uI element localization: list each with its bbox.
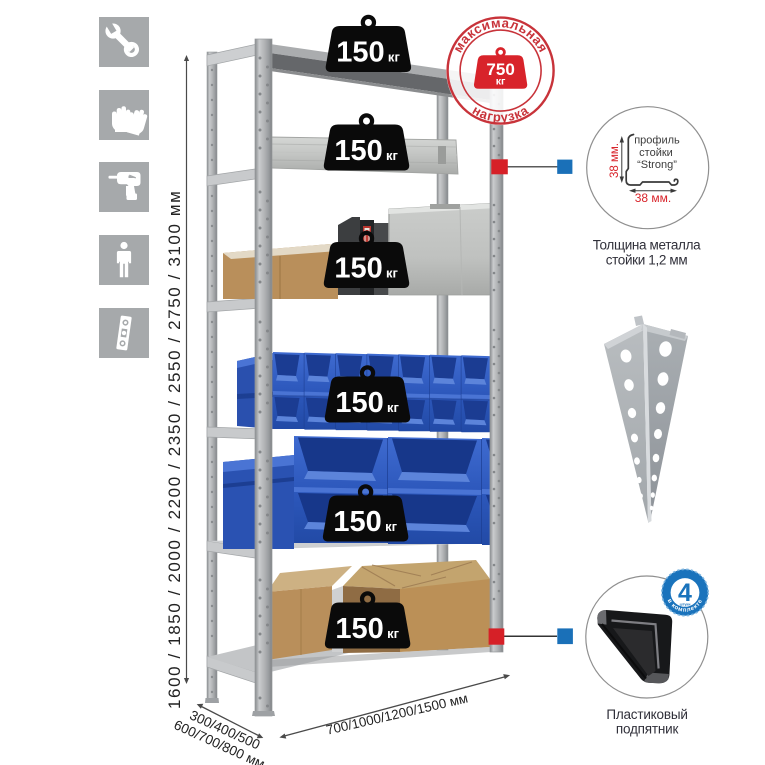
svg-text:Толщина металла: Толщина металла: [593, 238, 701, 253]
svg-text:профиль: профиль: [634, 135, 680, 147]
svg-text:38 мм.: 38 мм.: [609, 143, 621, 178]
svg-text:38 мм.: 38 мм.: [635, 191, 672, 205]
svg-text:стойки 1,2 мм: стойки 1,2 мм: [606, 253, 688, 268]
svg-text:700/1000/1200/1500 мм: 700/1000/1200/1500 мм: [325, 690, 470, 737]
svg-text:1600 / 1850 / 2000 / 2200 / 23: 1600 / 1850 / 2000 / 2200 / 2350 / 2550 …: [165, 190, 184, 709]
svg-text:подпятник: подпятник: [616, 722, 679, 737]
svg-text:штуки: штуки: [680, 602, 691, 606]
svg-text:кг: кг: [496, 76, 506, 88]
svg-text:Пластиковый: Пластиковый: [606, 707, 687, 722]
svg-text:“Strong”: “Strong”: [637, 159, 677, 171]
svg-text:стойки: стойки: [639, 147, 673, 159]
